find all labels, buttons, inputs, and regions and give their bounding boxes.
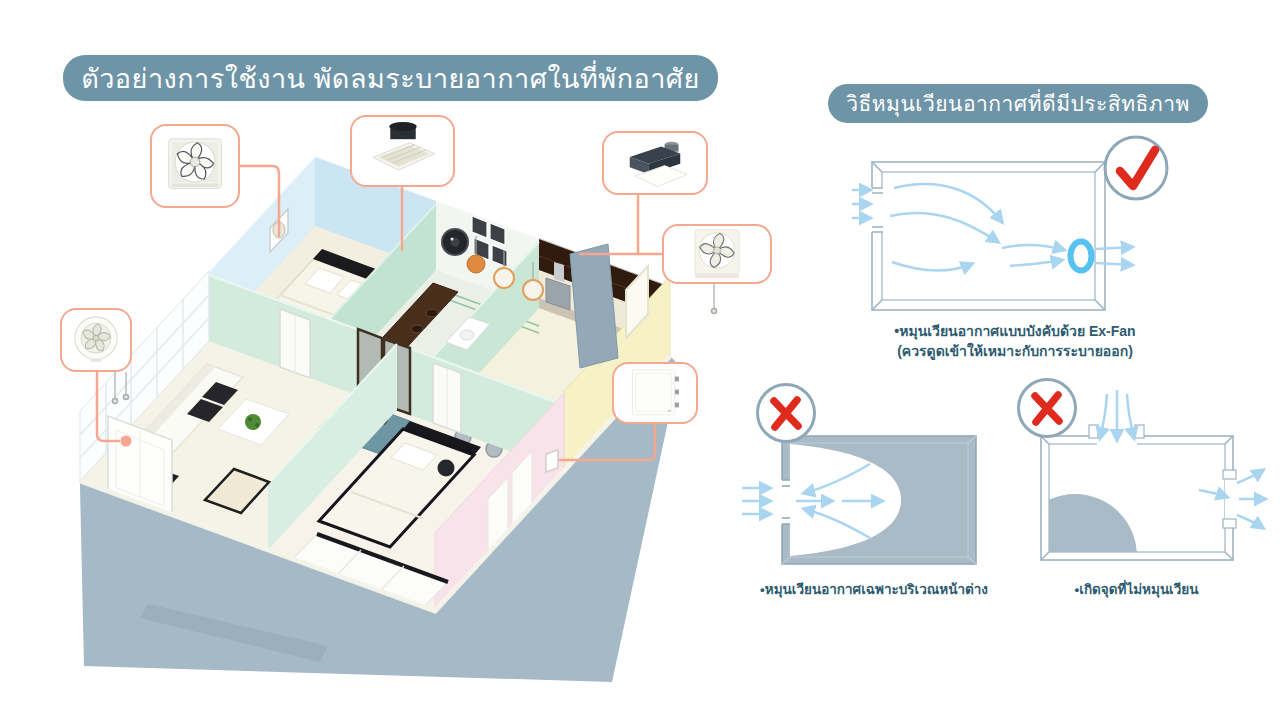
caption-dead-spot: •เกิดจุดที่ไม่หมุนเวียน bbox=[1003, 581, 1270, 600]
caption-line: (ควรดูดเข้าให้เหมาะกับการระบายออก) bbox=[850, 342, 1180, 362]
exfan-ring-icon bbox=[1071, 242, 1092, 271]
house-isometric bbox=[80, 156, 680, 682]
connector-end-dot bbox=[121, 436, 132, 447]
caption-window-only: •หมุนเวียนอากาศเฉพาะบริเวณหน้าต่าง bbox=[738, 581, 1010, 600]
diagram-forced-exfan bbox=[850, 130, 1180, 322]
wall-shutter-fan-icon bbox=[685, 227, 749, 281]
round-exhaust-fan-icon bbox=[68, 313, 124, 367]
fan-callout-1 bbox=[150, 124, 240, 208]
ceiling-cassette-fan-icon bbox=[360, 121, 446, 181]
caption-line: •หมุนเวียนอากาศเฉพาะบริเวณหน้าต่าง bbox=[738, 581, 1010, 600]
fan-callout-2 bbox=[350, 115, 455, 187]
sub-title-text: วิธีหมุนเวียนอากาศที่ดีมีประสิทธิภาพ bbox=[846, 87, 1190, 120]
bathroom-round-fan bbox=[442, 229, 468, 255]
main-title-banner: ตัวอย่างการใช้งาน พัดลมระบายอากาศในที่พั… bbox=[63, 55, 718, 101]
window-opening bbox=[865, 188, 884, 232]
fan-callout-6 bbox=[60, 308, 132, 372]
right-opening bbox=[1225, 478, 1240, 520]
wall-exhaust-fan-icon bbox=[159, 133, 231, 199]
diagram-window-only bbox=[738, 382, 1010, 580]
x-icon bbox=[1019, 380, 1076, 437]
flat-panel-fan-icon bbox=[624, 367, 686, 419]
main-title-text: ตัวอย่างการใช้งาน พัดลมระบายอากาศในที่พั… bbox=[81, 57, 700, 100]
caption-line: •หมุนเวียนอากาศแบบบังคับด้วย Ex-Fan bbox=[850, 322, 1180, 342]
x-icon bbox=[758, 385, 815, 442]
ducted-ceiling-fan-icon bbox=[613, 136, 697, 190]
diagram-dead-spot bbox=[1003, 378, 1270, 582]
fan-callout-3 bbox=[602, 131, 708, 195]
check-icon bbox=[1105, 137, 1167, 199]
fan-callout-4 bbox=[662, 224, 772, 284]
sub-title-banner: วิธีหมุนเวียนอากาศที่ดีมีประสิทธิภาพ bbox=[828, 84, 1208, 123]
caption-forced-exfan: •หมุนเวียนอากาศแบบบังคับด้วย Ex-Fan (ควร… bbox=[850, 322, 1180, 361]
fan-callout-5 bbox=[612, 362, 698, 424]
caption-line: •เกิดจุดที่ไม่หมุนเวียน bbox=[1003, 581, 1270, 600]
